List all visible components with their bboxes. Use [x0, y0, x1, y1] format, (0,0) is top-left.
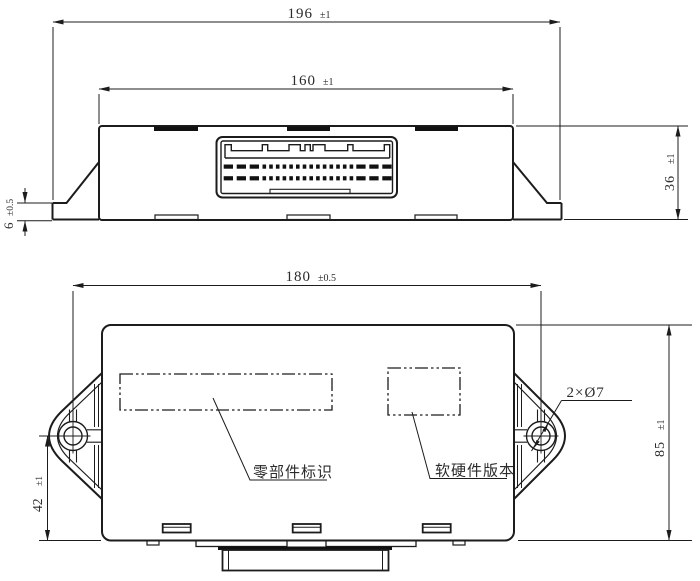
side-view-top-tabs [154, 127, 458, 132]
dim-body-width-value: 160 [291, 73, 317, 89]
dim-hole-spacing: 180 ±0.5 [73, 269, 541, 420]
connector-protrusion [223, 550, 389, 571]
side-view-left-flange [53, 162, 100, 220]
technical-drawing-page: 196 ±1 160 ±1 36 ±1 [0, 0, 700, 581]
side-view-bottom-tabs [155, 215, 457, 220]
dim-body-width-tol: ±1 [323, 77, 334, 88]
side-view: 196 ±1 160 ±1 36 ±1 [1, 6, 688, 236]
dim-side-height-tol: ±1 [666, 154, 677, 165]
connector-inner-shroud [221, 141, 393, 194]
mounting-holes-label: 2×Ø7 [567, 385, 605, 401]
left-mounting-ear [49, 373, 102, 499]
dim-front-height-tol: ±1 [656, 420, 667, 431]
front-view-housing [102, 325, 514, 541]
connector-key-profile [225, 145, 390, 158]
dim-hole-spacing-tol: ±0.5 [318, 273, 336, 284]
dim-overall-width: 196 ±1 [53, 6, 560, 200]
version-marking-label: 软硬件版本 [435, 463, 515, 480]
part-marking-area [120, 374, 332, 410]
dim-flange-thickness-value: 6 [1, 222, 16, 229]
dim-flange-thickness-tol: ±0.5 [6, 199, 16, 216]
side-view-right-flange [513, 162, 562, 220]
version-marking-area [388, 368, 460, 415]
dim-hole-to-bottom-value: 42 [30, 499, 45, 513]
version-marking-callout: 软硬件版本 [412, 412, 515, 480]
dim-body-width: 160 ±1 [99, 73, 513, 124]
front-view-feet-tabs [163, 524, 451, 533]
dim-side-height: 36 ±1 [516, 126, 688, 220]
front-view-bottom-edge [147, 541, 465, 571]
front-view: 零部件标识 软硬件版本 2×Ø7 [30, 269, 692, 571]
dim-hole-spacing-value: 180 [286, 269, 312, 285]
connector-front [217, 137, 398, 198]
dim-overall-width-value: 196 [288, 6, 314, 22]
right-mounting-ear [514, 373, 565, 499]
dim-overall-width-tol: ±1 [320, 10, 331, 21]
dim-hole-to-bottom-tol: ±1 [35, 476, 45, 486]
connector-pins [224, 165, 392, 181]
part-marking-label: 零部件标识 [253, 464, 333, 481]
dim-flange-thickness: 6 ±0.5 [1, 188, 52, 236]
side-view-housing [99, 126, 513, 220]
dim-side-height-value: 36 [663, 175, 678, 191]
mounting-holes-callout: 2×Ø7 [532, 385, 633, 451]
dim-front-height-value: 85 [653, 441, 668, 457]
ecu-dimension-drawing: 196 ±1 160 ±1 36 ±1 [0, 0, 700, 581]
